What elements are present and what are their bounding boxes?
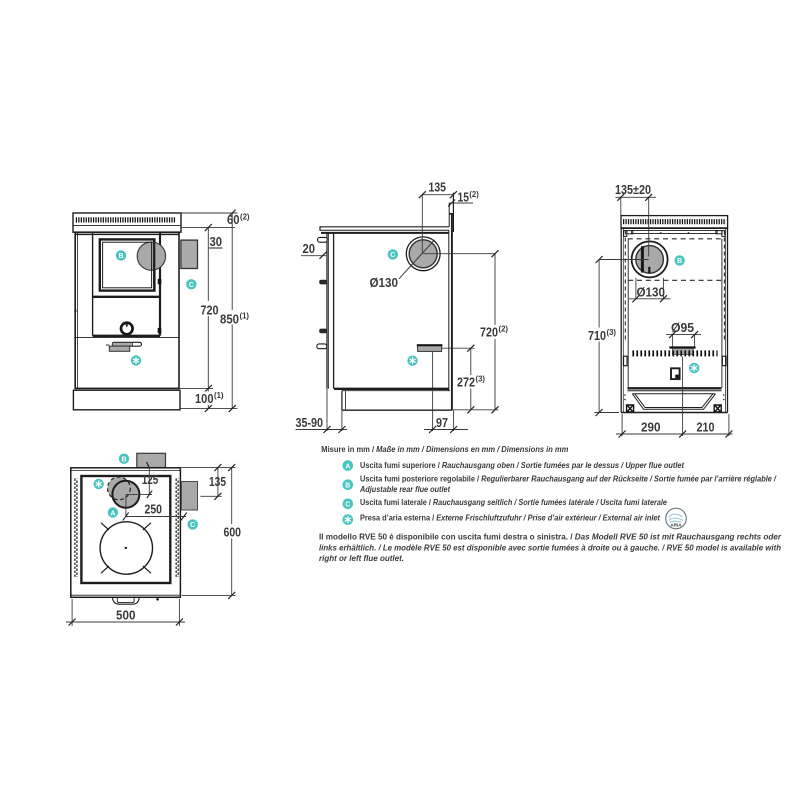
- svg-text:135±20: 135±20: [615, 182, 651, 197]
- svg-text:600: 600: [224, 525, 242, 540]
- svg-text:B: B: [345, 482, 350, 489]
- svg-text:(1): (1): [240, 312, 250, 321]
- svg-text:right or left flue outlet.: right or left flue outlet.: [319, 554, 404, 563]
- svg-text:links erhältlich. / Le modèle: links erhältlich. / Le modèle RVE 50 est…: [319, 543, 781, 552]
- svg-text:A: A: [345, 463, 350, 470]
- svg-text:850: 850: [220, 312, 239, 327]
- svg-text:B: B: [677, 258, 682, 265]
- svg-text:Uscita fumi superiore / Raucha: Uscita fumi superiore / Rauchausgang obe…: [360, 461, 684, 470]
- svg-text:(2): (2): [469, 190, 479, 199]
- svg-text:135: 135: [209, 474, 226, 489]
- svg-text:272: 272: [457, 375, 475, 390]
- svg-text:Il modello RVE 50 è disponibil: Il modello RVE 50 è disponibile con usci…: [319, 533, 782, 542]
- svg-text:Ø95: Ø95: [671, 320, 694, 335]
- svg-text:Uscita fumi posteriore regolab: Uscita fumi posteriore regolabile / Regu…: [360, 475, 777, 484]
- svg-text:Ø130: Ø130: [370, 275, 399, 290]
- svg-text:720: 720: [480, 325, 498, 340]
- svg-text:720: 720: [201, 303, 219, 318]
- svg-text:C: C: [190, 522, 195, 529]
- svg-text:B: B: [121, 457, 126, 464]
- svg-text:Adjustable rear flue outlet: Adjustable rear flue outlet: [359, 485, 450, 494]
- svg-text:C: C: [189, 282, 194, 289]
- svg-text:210: 210: [697, 420, 715, 435]
- svg-text:Misure in mm / Maße in mm / Di: Misure in mm / Maße in mm / Dimensions e…: [321, 445, 568, 454]
- svg-text:C: C: [345, 502, 350, 509]
- svg-text:100: 100: [195, 391, 214, 406]
- svg-text:290: 290: [641, 420, 661, 435]
- svg-text:C: C: [390, 252, 395, 259]
- svg-text:35-90: 35-90: [296, 415, 324, 430]
- svg-text:60: 60: [227, 212, 240, 227]
- svg-text:125: 125: [142, 472, 159, 487]
- svg-text:250: 250: [145, 502, 163, 517]
- svg-text:135: 135: [429, 180, 447, 195]
- svg-text:Presa d’aria esterna / Externe: Presa d’aria esterna / Externe Frischluf…: [360, 514, 660, 523]
- svg-text:ARIA: ARIA: [671, 523, 683, 528]
- svg-text:710: 710: [588, 328, 606, 343]
- svg-text:(1): (1): [214, 391, 224, 400]
- svg-text:20: 20: [303, 241, 316, 256]
- svg-text:(2): (2): [240, 213, 250, 222]
- svg-text:30: 30: [210, 234, 223, 249]
- svg-text:(2): (2): [499, 325, 509, 334]
- svg-text:97: 97: [436, 415, 448, 430]
- svg-text:Uscita fumi laterale / Rauchau: Uscita fumi laterale / Rauchausgang seit…: [360, 498, 667, 507]
- svg-text:15: 15: [458, 190, 470, 205]
- svg-text:(3): (3): [607, 328, 617, 337]
- svg-text:B: B: [118, 253, 123, 260]
- svg-text:Ø130: Ø130: [637, 285, 666, 300]
- svg-text:A: A: [110, 510, 115, 517]
- svg-text:500: 500: [116, 608, 136, 623]
- svg-text:(3): (3): [476, 375, 486, 384]
